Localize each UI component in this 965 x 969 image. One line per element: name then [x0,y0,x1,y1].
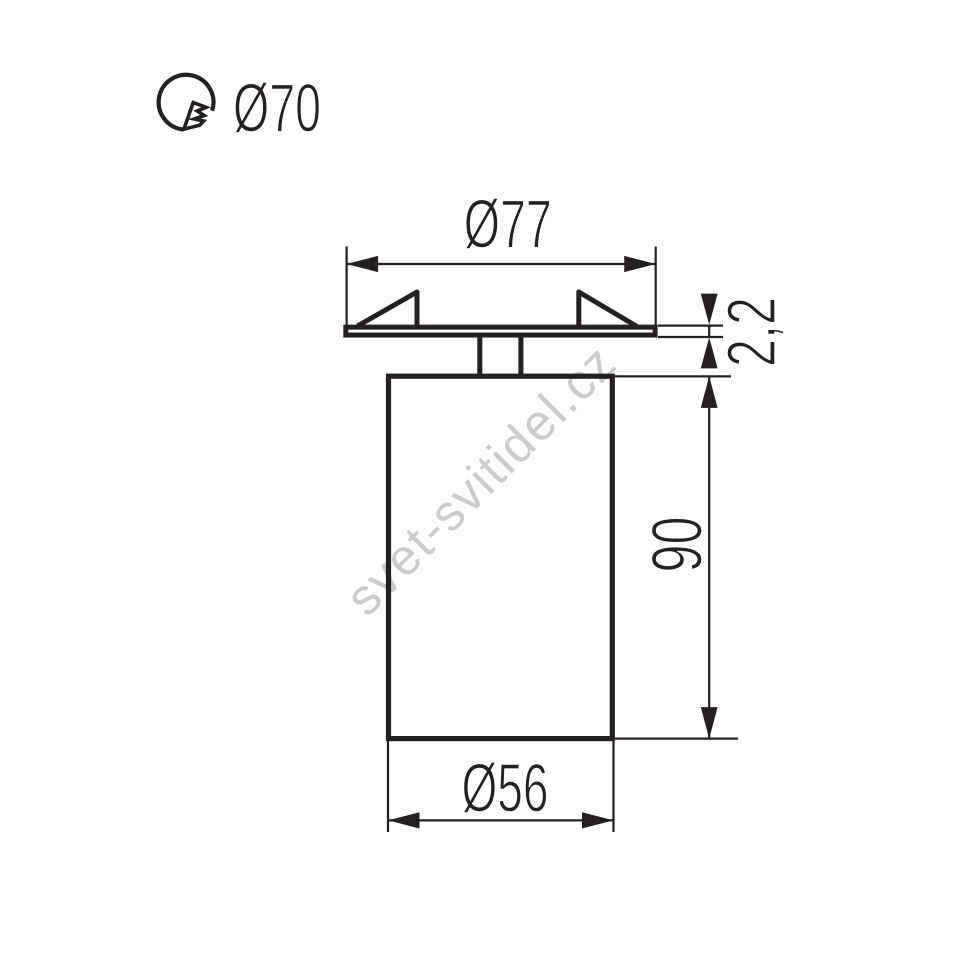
svg-text:Ø56: Ø56 [462,751,549,827]
svg-text:Ø70: Ø70 [233,71,321,147]
svg-text:90: 90 [639,517,718,573]
svg-text:2,2: 2,2 [714,297,790,367]
svg-text:Ø77: Ø77 [464,187,552,263]
